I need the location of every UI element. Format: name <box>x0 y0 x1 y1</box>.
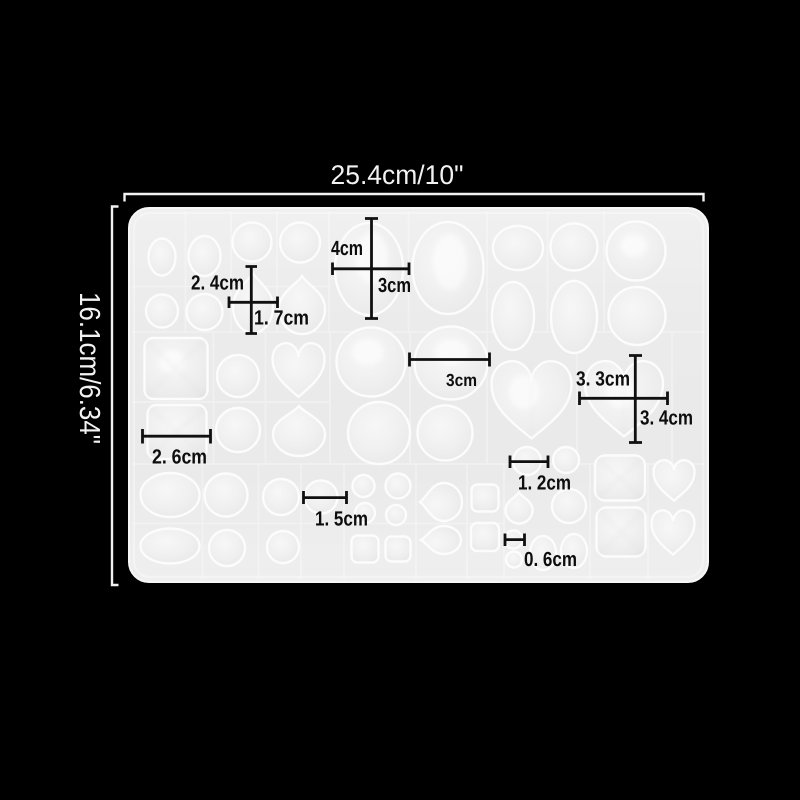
svg-text:3cm: 3cm <box>446 370 477 390</box>
svg-text:2. 4cm: 2. 4cm <box>191 272 244 295</box>
svg-text:16.1cm/6.34": 16.1cm/6.34" <box>73 292 105 444</box>
svg-text:3. 3cm: 3. 3cm <box>576 368 630 391</box>
svg-text:1. 2cm: 1. 2cm <box>518 472 571 495</box>
svg-text:0. 6cm: 0. 6cm <box>524 548 577 571</box>
svg-text:3. 4cm: 3. 4cm <box>640 407 693 430</box>
svg-text:3cm: 3cm <box>378 274 411 297</box>
svg-text:4cm: 4cm <box>331 237 363 260</box>
svg-text:1. 7cm: 1. 7cm <box>254 307 309 330</box>
svg-text:25.4cm/10": 25.4cm/10" <box>331 160 464 190</box>
svg-text:1. 5cm: 1. 5cm <box>315 508 368 531</box>
svg-text:2. 6cm: 2. 6cm <box>152 446 207 469</box>
